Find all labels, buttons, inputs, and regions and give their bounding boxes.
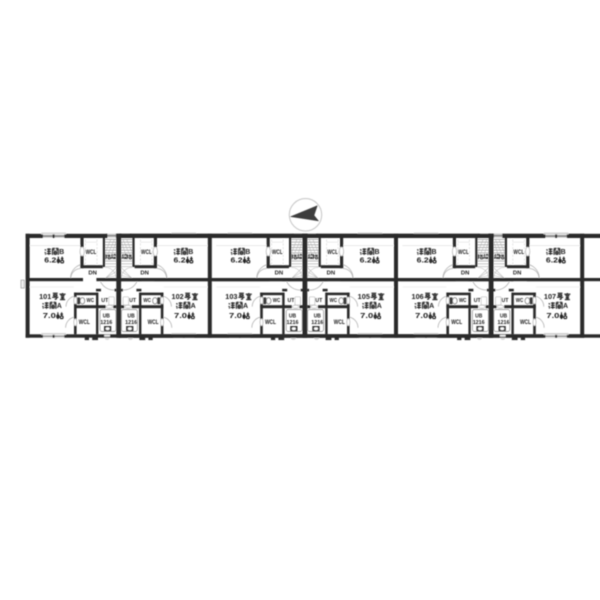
svg-text:6.2: 6.2 — [417, 258, 429, 265]
svg-text:A: A — [243, 303, 248, 310]
svg-text:WC: WC — [459, 298, 467, 304]
svg-text:WCL: WCL — [334, 319, 345, 326]
svg-text:105: 105 — [358, 294, 370, 301]
svg-text:UT: UT — [502, 298, 510, 304]
svg-text:WC: WC — [516, 298, 524, 304]
svg-text:A: A — [429, 303, 434, 310]
svg-text:7.0: 7.0 — [229, 313, 242, 320]
svg-text:A: A — [563, 303, 568, 310]
svg-text:WCL: WCL — [513, 249, 524, 256]
svg-text:UB: UB — [289, 313, 296, 319]
svg-text:UB: UB — [314, 313, 321, 319]
svg-text:WCL: WCL — [458, 249, 469, 256]
svg-text:B: B — [188, 249, 193, 256]
svg-text:DN: DN — [275, 270, 284, 276]
svg-text:7.0: 7.0 — [546, 313, 559, 320]
svg-text:WCL: WCL — [327, 249, 338, 256]
svg-text:UT: UT — [474, 298, 482, 304]
svg-text:7.0: 7.0 — [174, 313, 187, 320]
svg-text:106: 106 — [412, 294, 424, 301]
svg-text:UB: UB — [103, 313, 110, 319]
svg-text:1216: 1216 — [100, 320, 112, 326]
svg-text:6.2: 6.2 — [44, 258, 56, 265]
svg-text:WC: WC — [87, 298, 95, 304]
svg-text:UB: UB — [475, 313, 482, 319]
svg-text:WCL: WCL — [520, 319, 531, 326]
svg-text:WCL: WCL — [141, 249, 152, 256]
svg-text:1216: 1216 — [287, 320, 299, 326]
svg-text:A: A — [377, 303, 382, 310]
svg-text:WC: WC — [273, 298, 281, 304]
svg-text:A: A — [191, 303, 196, 310]
svg-text:UT: UT — [129, 298, 137, 304]
svg-text:B: B — [561, 249, 566, 256]
svg-text:6.2: 6.2 — [174, 258, 186, 265]
svg-text:7.0: 7.0 — [43, 313, 56, 320]
svg-text:WCL: WCL — [265, 319, 276, 326]
svg-text:DN: DN — [513, 270, 522, 276]
svg-text:UT: UT — [101, 298, 109, 304]
svg-text:6.2: 6.2 — [546, 258, 558, 265]
svg-text:1216: 1216 — [473, 320, 485, 326]
svg-text:103: 103 — [225, 294, 237, 301]
svg-text:DN: DN — [327, 270, 336, 276]
svg-text:7.0: 7.0 — [360, 313, 373, 320]
svg-text:6.2: 6.2 — [360, 258, 372, 265]
svg-text:UT: UT — [315, 298, 323, 304]
svg-text:WCL: WCL — [79, 319, 90, 326]
svg-text:WCL: WCL — [451, 319, 462, 326]
svg-text:WCL: WCL — [148, 319, 159, 326]
svg-text:1216: 1216 — [498, 320, 510, 326]
svg-text:107: 107 — [544, 294, 556, 301]
svg-text:UB: UB — [500, 313, 507, 319]
svg-text:WCL: WCL — [272, 249, 283, 256]
svg-text:DN: DN — [140, 270, 149, 276]
svg-text:DN: DN — [88, 270, 97, 276]
svg-text:7.0: 7.0 — [415, 313, 428, 320]
svg-text:WC: WC — [330, 298, 338, 304]
svg-text:1216: 1216 — [311, 320, 323, 326]
svg-text:102: 102 — [172, 294, 184, 301]
svg-text:UT: UT — [288, 298, 296, 304]
svg-text:B: B — [374, 249, 379, 256]
svg-text:1216: 1216 — [125, 320, 137, 326]
svg-text:6.2: 6.2 — [231, 258, 243, 265]
svg-text:B: B — [245, 249, 250, 256]
svg-text:B: B — [431, 249, 436, 256]
svg-text:DN: DN — [461, 270, 470, 276]
svg-text:UB: UB — [128, 313, 135, 319]
svg-text:B: B — [59, 249, 64, 256]
svg-text:A: A — [57, 303, 62, 310]
svg-text:101: 101 — [39, 294, 51, 301]
svg-text:WC: WC — [143, 298, 151, 304]
svg-text:WCL: WCL — [86, 249, 97, 256]
